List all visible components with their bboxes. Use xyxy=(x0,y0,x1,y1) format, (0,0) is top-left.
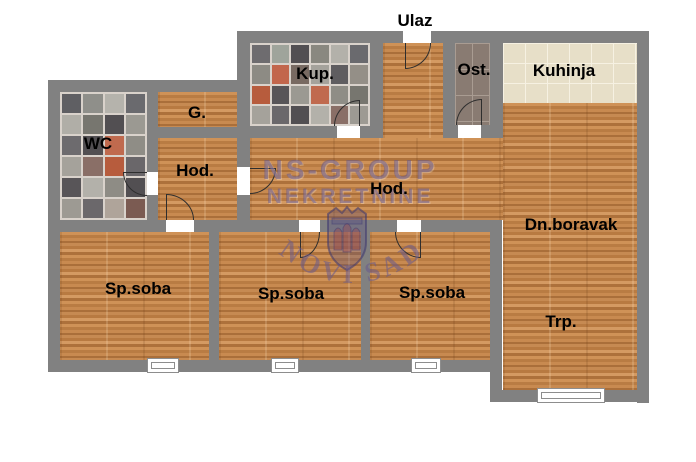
door-gap-bedroom1 xyxy=(166,220,194,232)
room-living-dining-floor xyxy=(503,103,637,390)
label-entrance: Ulaz xyxy=(398,11,433,31)
label-kuhinja: Kuhinja xyxy=(533,61,595,81)
door-gap-wc xyxy=(147,172,158,195)
watermark-line1: NS-GROUP xyxy=(263,154,438,186)
label-spsoba1: Sp.soba xyxy=(105,279,171,299)
wall-g-bottom xyxy=(147,127,250,138)
label-kupatilo: Kup. xyxy=(296,64,334,84)
wall-ost-left xyxy=(443,43,455,138)
wall-top xyxy=(237,31,649,43)
wall-bed3-trp xyxy=(490,220,502,402)
wall-kup-bottom xyxy=(250,126,383,138)
window-bedroom2 xyxy=(271,358,299,373)
label-hodnik-left: Hod. xyxy=(176,161,214,181)
label-hodnik-center: Hod. xyxy=(370,179,408,199)
watermark-badge-text: NOVI SAD xyxy=(252,228,452,318)
window-bedroom3 xyxy=(411,358,441,373)
label-spsoba3: Sp.soba xyxy=(399,283,465,303)
wall-bed1-bed2 xyxy=(209,232,219,360)
label-dnevni-boravak: Dn.boravak xyxy=(525,215,618,235)
window-trpezarija xyxy=(537,388,605,403)
door-gap-entrance xyxy=(403,31,431,43)
wall-outer-right xyxy=(637,31,649,403)
label-ostava: Ost. xyxy=(457,60,490,80)
label-trpezarija: Trp. xyxy=(545,312,576,332)
svg-text:NOVI SAD: NOVI SAD xyxy=(274,234,430,290)
label-spsoba2: Sp.soba xyxy=(258,284,324,304)
window-bedroom1 xyxy=(147,358,179,373)
door-gap-hodnik xyxy=(237,167,250,195)
room-wc-floor xyxy=(60,92,147,220)
wall-hodl-right xyxy=(237,43,250,232)
wall-wc-right xyxy=(147,91,158,232)
door-gap-kupatilo xyxy=(337,126,360,138)
wall-kitchen-left xyxy=(490,43,503,138)
floor-plan: NS-GROUP NEKRETNINE NOVI SAD Ulaz Kup. O… xyxy=(0,0,696,462)
label-garderoba: G. xyxy=(188,103,206,123)
wall-kup-right xyxy=(370,43,383,138)
door-gap-ostava xyxy=(458,125,481,138)
label-wc: WC xyxy=(84,134,112,154)
